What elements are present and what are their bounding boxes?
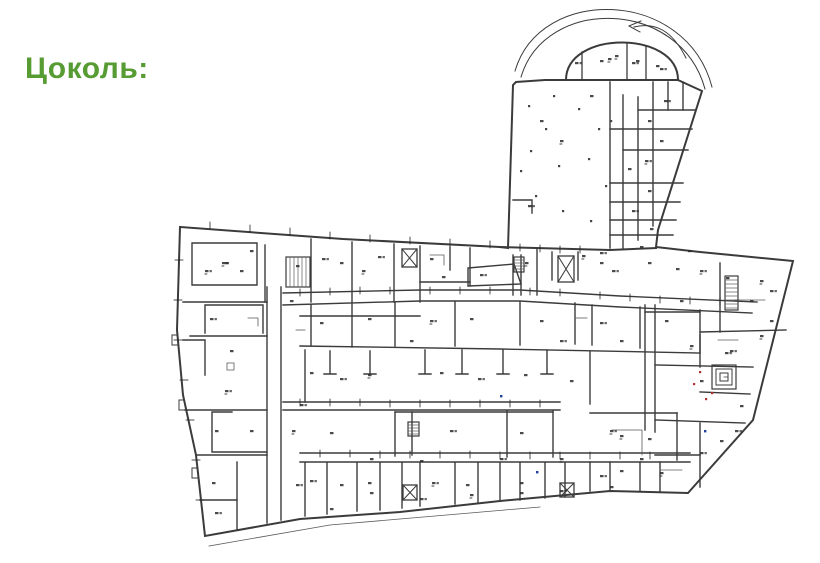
curved-arrow-icon (629, 21, 686, 58)
column-dots (520, 95, 612, 222)
ramp-arc (515, 9, 712, 89)
page: Цоколь: (0, 0, 820, 563)
red-annotation-marks (693, 371, 713, 400)
basement-floor-plan (0, 0, 820, 563)
interior-walls (183, 82, 786, 530)
dimension-ticks (174, 222, 720, 500)
